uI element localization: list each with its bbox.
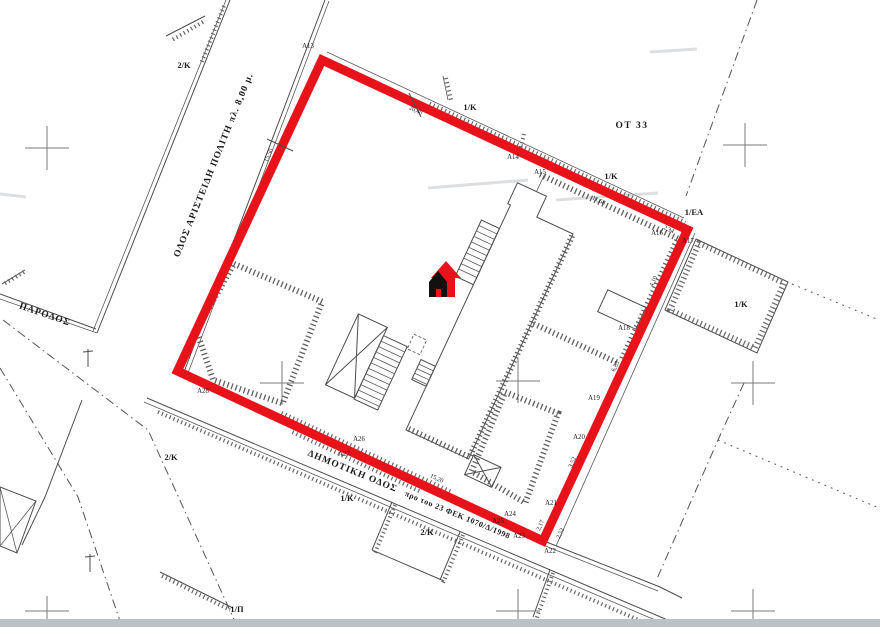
boundary-dashdot-sw <box>3 320 237 626</box>
stair-block <box>325 309 427 416</box>
point-label: A28 <box>197 388 209 395</box>
point-label: A26 <box>353 436 365 443</box>
building-small <box>465 389 566 503</box>
dimension-label: 15,20 <box>429 473 445 485</box>
house-marker-icon[interactable] <box>429 261 461 297</box>
utility-pole-icon <box>83 349 93 367</box>
point-label: A25 <box>492 518 504 525</box>
parcel-label: 2/K <box>420 527 434 537</box>
point-label: A15 <box>534 169 546 176</box>
street-edge-hatch <box>201 6 224 64</box>
parcel-label: 1/K <box>463 102 477 112</box>
point-label: A27 <box>338 451 350 458</box>
street-label-parodos: ΠΑΡΟΔΟΣ <box>18 302 72 329</box>
sw-x-parcel <box>0 487 36 553</box>
point-label: A21 <box>545 500 557 507</box>
parcel-label: 2/K <box>177 60 191 70</box>
point-label: A23 <box>513 533 525 540</box>
map-canvas[interactable]: ΟΔΟΣ ΑΡΙΣΤΕΙΔΗ ΠΟΛΙΤΗ πλ. 8,00 μ. ΠΑΡΟΔΟ… <box>0 0 880 627</box>
right-parcel-1k <box>665 239 788 353</box>
parcel-label: 1/Π <box>230 604 244 614</box>
boundary-dashdot-ne <box>686 0 757 196</box>
utility-pole-icon <box>85 554 95 572</box>
marker-house-door <box>436 289 441 297</box>
point-label: A19 <box>588 395 600 402</box>
road-south-hatch <box>158 412 648 624</box>
street-label-dimotiki: ΔΗΜΟΤΙΚΗ ΟΔΟΣ προ του 23 ΦΕΚ 1070/Δ/1998 <box>306 443 514 542</box>
parcel-label: 2/K <box>164 452 178 462</box>
point-label: A14 <box>507 154 519 161</box>
block-label-ot33: ΟΤ 33 <box>616 121 649 131</box>
parcel-label: 1/K <box>340 493 354 503</box>
point-label: A18 <box>618 325 630 332</box>
bottom-edge-bar <box>0 619 880 627</box>
point-label: A13 <box>302 43 314 50</box>
parcel-label: 1/K <box>604 171 618 181</box>
point-label: A24 <box>504 511 516 518</box>
point-label: A20 <box>573 434 585 441</box>
red-property-boundary <box>177 60 687 541</box>
point-label: A16 <box>651 230 663 237</box>
street-linework <box>0 0 879 627</box>
cadastral-plan-screenshot: ΟΔΟΣ ΑΡΙΣΤΕΙΔΗ ΠΟΛΙΤΗ πλ. 8,00 μ. ΠΑΡΟΔΟ… <box>0 0 880 627</box>
survey-cross-marks <box>25 123 775 619</box>
point-label: A17 <box>682 238 694 245</box>
building-ledge <box>598 290 646 329</box>
parcel-label: 1/K <box>734 299 748 309</box>
point-label: A22 <box>544 548 556 555</box>
parcel-label: 1/ΕΑ <box>685 207 704 217</box>
dimension-label: 2,52 <box>555 527 566 540</box>
